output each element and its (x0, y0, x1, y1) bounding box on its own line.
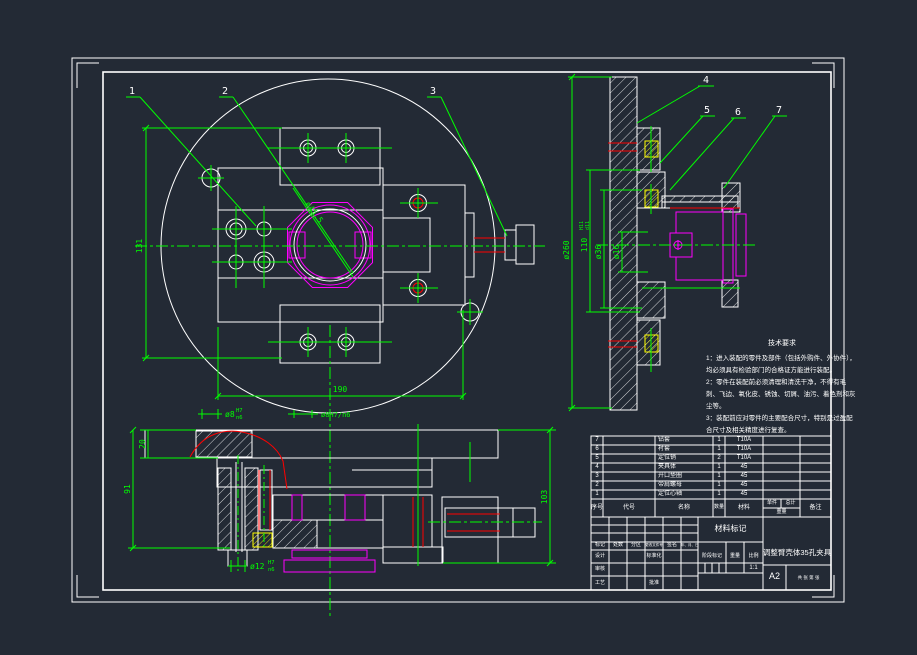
part-no: 1 (591, 491, 603, 497)
header-weight-total: 总计 (781, 501, 800, 506)
drawing-title: 调整臂壳体35孔夹具 (757, 549, 837, 557)
part-name: 夹具体 (658, 464, 676, 470)
part-material: 45 (725, 473, 763, 479)
part-no: 5 (591, 455, 603, 461)
header-qty: 数量 (713, 505, 725, 510)
header-no: 序号 (591, 505, 603, 511)
part-material: 45 (725, 482, 763, 488)
dim-190: 190 (333, 385, 348, 394)
balloon-4: 4 (703, 75, 709, 86)
header-weight: 重量 (763, 510, 800, 515)
rev-file-label: 更改文件号 (645, 544, 663, 548)
part-name: 定位心轴 (658, 491, 682, 497)
stage-mark-label: 阶段标记 (698, 554, 726, 559)
dim-110: 110 (580, 238, 589, 253)
balloon-3: 3 (430, 86, 436, 97)
header-material: 材料 (725, 505, 763, 511)
approve-label: 批准 (645, 581, 663, 586)
sheet-size: A2 (763, 572, 786, 581)
dim-20: 20 (138, 439, 147, 449)
part-qty: 1 (713, 473, 725, 479)
cad-drawing-canvas: { "drawing": { "balloons": ["1","2","3",… (0, 0, 917, 655)
part-material: T10A (725, 455, 763, 461)
part-qty: 1 (713, 437, 725, 443)
dim-bush12-fit: ø12 H7 n6 (250, 560, 275, 573)
part-name: 定位销 (658, 455, 676, 461)
scale-value: 1:1 (744, 565, 763, 571)
dim-d16: ø16 (612, 245, 621, 260)
part-qty: 1 (713, 446, 725, 452)
rev-zone-label: 分区 (627, 543, 645, 548)
header-weight-unit: 单件 (763, 501, 781, 506)
dim-d260: ø260 (562, 240, 571, 259)
rev-date-label: 年、月、日 (681, 544, 698, 548)
svg-text:ø8: ø8 (225, 410, 235, 419)
part-qty: 1 (713, 482, 725, 488)
part-material: T10A (725, 437, 763, 443)
view-front-section: 20 91 103 ø8 H7 n6 ø12 H7 n6 (123, 408, 556, 574)
svg-text:H7: H7 (236, 408, 243, 414)
header-code: 代号 (603, 505, 655, 511)
balloon-2: 2 (222, 86, 228, 97)
notes-title: 技术要求 (706, 338, 858, 350)
balloon-6: 6 (735, 107, 741, 118)
rev-count-label: 处数 (609, 543, 627, 548)
check-label: 审核 (591, 567, 609, 572)
dim-91: 91 (123, 484, 132, 494)
part-no: 6 (591, 446, 603, 452)
dim-131: 131 (135, 239, 144, 254)
dim-103: 103 (540, 490, 549, 505)
dim-d36: ø36 (594, 245, 603, 260)
part-material: 45 (725, 464, 763, 470)
part-no: 4 (591, 464, 603, 470)
note-2: 2：零件在装配前必须清理和清洗干净，不得有毛刺、飞边、氧化皮、锈蚀、切屑、油污、… (706, 377, 858, 413)
balloon-7: 7 (776, 105, 782, 116)
design-label: 设计 (591, 554, 609, 559)
technical-notes: 技术要求 1：进入装配的零件及部件（包括外购件、外协件），均必须具有检验部门的合… (706, 338, 858, 437)
sheet-border (72, 58, 844, 602)
note-1: 1：进入装配的零件及部件（包括外购件、外协件），均必须具有检验部门的合格证方能进… (706, 353, 858, 377)
dim-pin-fit: ø8H7/n6 (321, 411, 351, 419)
part-no: 2 (591, 482, 603, 488)
part-no: 3 (591, 473, 603, 479)
process-label: 工艺 (591, 581, 609, 586)
rev-mark-label: 标记 (591, 543, 609, 548)
svg-text:n6: n6 (268, 567, 275, 573)
part-material: T10A (725, 446, 763, 452)
svg-text:H7: H7 (268, 560, 275, 566)
part-name: 衬套 (658, 446, 670, 452)
dim-bush8-fit: ø8 H7 n6 (198, 408, 243, 421)
rev-sign-label: 签名 (663, 543, 681, 548)
svg-text:ø12: ø12 (250, 562, 265, 571)
part-name: 开口垫圈 (658, 473, 682, 479)
svg-text:n6: n6 (236, 415, 243, 421)
part-qty: 1 (713, 464, 725, 470)
corner-mark-bl (77, 575, 99, 597)
part-name: 带肩螺母 (658, 482, 682, 488)
part-material: 45 (725, 491, 763, 497)
material-mark: 材料标记 (698, 525, 763, 533)
part-qty: 1 (713, 491, 725, 497)
clamp-bore (288, 203, 373, 288)
balloon-1: 1 (129, 86, 135, 97)
balloon-5: 5 (704, 105, 710, 116)
workpiece (670, 209, 746, 283)
note-3: 3：装配前应对零件的主要配合尺寸，特别是过盈配合尺寸及相关精度进行复查。 (706, 413, 858, 437)
header-remark: 备注 (800, 505, 831, 511)
corner-mark-tl (77, 63, 99, 88)
weight-label: 重量 (726, 554, 744, 559)
standard-label: 标准化 (645, 554, 663, 559)
sheet-info: 共 张 第 张 (786, 576, 831, 581)
part-qty: 2 (713, 455, 725, 461)
dim-110-fit-lower: d11 (585, 221, 591, 230)
part-name: 钻套 (658, 437, 670, 443)
part-no: 7 (591, 437, 603, 443)
header-name: 名称 (655, 505, 713, 511)
